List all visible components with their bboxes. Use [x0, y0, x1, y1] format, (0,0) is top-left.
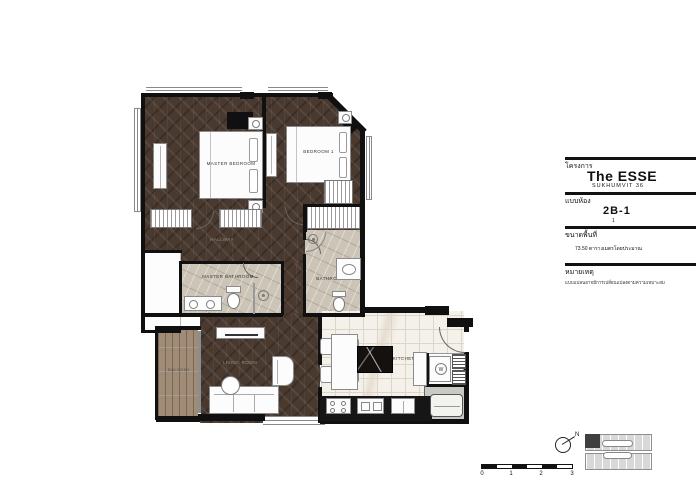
wall-balcony-bottom — [156, 416, 200, 422]
wall-nook-bottom — [143, 330, 181, 333]
sink-icon — [189, 300, 198, 309]
project-name: The ESSE — [587, 168, 657, 184]
remark-label: หมายเหตุ — [565, 267, 594, 278]
wall-closet-pier — [303, 204, 307, 232]
sink-basin — [373, 402, 382, 411]
counter-cabinet — [391, 398, 415, 414]
passage-wood-floor — [283, 263, 305, 315]
title-rule — [565, 157, 696, 160]
sofa-cushion-divider — [254, 395, 255, 412]
scale-segment — [542, 465, 557, 468]
remark-text: แบบแปลนอาจมีการเปลี่ยนแปลงตามความเหมาะสม — [565, 279, 665, 286]
wall-bathroom1-bottom — [303, 313, 365, 317]
shower-partition — [253, 283, 255, 314]
north-arrow: N — [553, 430, 587, 456]
louver-vent-icon — [452, 370, 466, 385]
wall-masterbath-top — [180, 261, 284, 264]
area-value: 73.50 ตารางเมตรโดยประมาณ — [575, 245, 642, 253]
window-band-left — [134, 108, 141, 212]
bedroom1-label: BEDROOM 1 — [286, 150, 351, 155]
ac-unit-line — [434, 406, 460, 407]
bedroom1-bed — [286, 126, 351, 183]
window-band-bedroom1-right — [366, 136, 372, 200]
armchair — [272, 356, 294, 386]
unit-type-label: แบบห้อง — [565, 196, 591, 207]
area-label: ขนาดพื้นที่ — [565, 230, 597, 241]
pillow — [249, 169, 258, 193]
title-rule — [565, 263, 696, 266]
scale-segment — [557, 465, 572, 468]
master-bedroom-label: MASTER BEDROOM — [199, 162, 263, 167]
pillow — [339, 157, 347, 178]
wall-pier-top-b — [318, 92, 332, 99]
wall-pier-top-a — [240, 92, 254, 99]
wall-entry-step-a — [425, 306, 449, 315]
shower-dot — [312, 238, 315, 241]
master-wardrobe-right — [219, 209, 262, 228]
balcony-sliding-glass-door — [198, 330, 201, 414]
bedroom1-closet — [266, 133, 277, 177]
cabinet-line — [403, 401, 404, 413]
master-bathroom-label: MASTER BATHROOM — [182, 275, 274, 280]
decor-plant-icon — [342, 114, 350, 122]
wall-right-upper — [360, 128, 365, 317]
sofa-back-line — [214, 394, 274, 395]
wall-balcony-left — [155, 326, 158, 420]
scale-number: 0 — [478, 471, 486, 477]
sink-icon — [342, 264, 356, 275]
master-vanity — [184, 296, 222, 311]
window-band-living-bottom — [263, 416, 325, 425]
master-toilet-tank — [226, 286, 241, 293]
shower-head-icon — [258, 290, 269, 301]
sink-basin — [361, 402, 370, 411]
balcony-label: BALCONY — [158, 368, 200, 372]
sofa-cushion-divider — [233, 395, 234, 412]
washer-drum-icon: W — [435, 363, 447, 375]
burner-icon — [341, 408, 346, 413]
title-rule — [565, 192, 696, 195]
ac-condenser-unit — [430, 394, 463, 417]
keyplan-core-oval — [602, 440, 633, 447]
closet-line — [271, 136, 272, 174]
wall-living-bottom — [198, 414, 265, 421]
shower-head-icon — [308, 234, 318, 244]
scale-number: 3 — [568, 471, 576, 477]
nightstand — [248, 117, 263, 130]
wall-kitchen-top — [360, 307, 430, 313]
tv-screen — [225, 334, 258, 336]
scale-number: 2 — [537, 471, 545, 477]
scale-number: 1 — [507, 471, 515, 477]
burner-icon — [330, 408, 335, 413]
title-block: โครงการ The ESSE SUKHUMVIT 36 แบบห้อง 2B… — [565, 152, 696, 292]
balcony-deck-floor — [158, 328, 200, 420]
bedroom1-wardrobe — [324, 180, 353, 204]
master-wardrobe-left — [150, 209, 192, 228]
scale-segment — [527, 465, 542, 468]
scale-segment — [482, 465, 497, 468]
cooktop — [326, 398, 351, 414]
key-plan — [585, 432, 655, 472]
shower-dot — [262, 294, 265, 297]
floor-plan-sheet: MASTER BEDROOM BEDROOM 1 HALLWAY MASTER … — [0, 0, 700, 495]
keyplan-core-oval — [603, 452, 632, 459]
unit-sub: 1 — [612, 218, 615, 224]
louver-vent-icon — [452, 354, 466, 369]
sink-icon — [206, 300, 215, 309]
fridge — [413, 352, 427, 386]
wall-masterbath-left — [179, 261, 182, 316]
armchair-seat-line — [277, 360, 278, 384]
kitchen-sink — [357, 398, 384, 414]
wall-closet-top — [304, 204, 364, 207]
bench-line — [160, 146, 161, 188]
wall-top — [141, 93, 333, 97]
dining-table — [331, 334, 358, 390]
hallway-label: HALLWAY — [190, 238, 254, 243]
scale-segment — [512, 465, 527, 468]
scale-bar: 0 1 2 3 — [479, 461, 579, 479]
wall-left — [141, 93, 145, 333]
tv-console — [216, 327, 265, 339]
title-rule — [565, 226, 696, 229]
wall-masterbath-right — [281, 263, 284, 315]
burner-icon — [330, 401, 335, 406]
round-side-table — [221, 376, 240, 395]
washer-letter: W — [439, 367, 444, 373]
keyplan-unit-highlight — [585, 434, 600, 448]
dressing-nook-floor — [143, 252, 181, 332]
bed-foot-line — [296, 127, 297, 182]
wall-nook-top — [143, 250, 182, 253]
project-subtitle: SUKHUMVIT 36 — [592, 183, 644, 189]
decor-plant-icon — [252, 120, 260, 128]
master-bedroom-bench — [153, 143, 167, 189]
closet-row-bedroom1 — [306, 206, 362, 229]
washing-machine: W — [429, 356, 451, 382]
sofa — [209, 386, 279, 414]
living-room-label: LIVING ROOM — [205, 361, 275, 366]
wall-bathroom1-left-b — [303, 254, 306, 315]
north-letter: N — [575, 432, 579, 438]
burner-icon — [341, 401, 346, 406]
wall-living-top — [143, 313, 283, 317]
pillow — [249, 138, 258, 162]
nightstand — [338, 111, 352, 124]
scale-bar-strip — [481, 464, 573, 469]
wall-entry-step-b — [447, 318, 473, 327]
scale-segment — [497, 465, 512, 468]
unit-type: 2B-1 — [603, 205, 631, 217]
bathroom1-vanity — [336, 258, 361, 280]
